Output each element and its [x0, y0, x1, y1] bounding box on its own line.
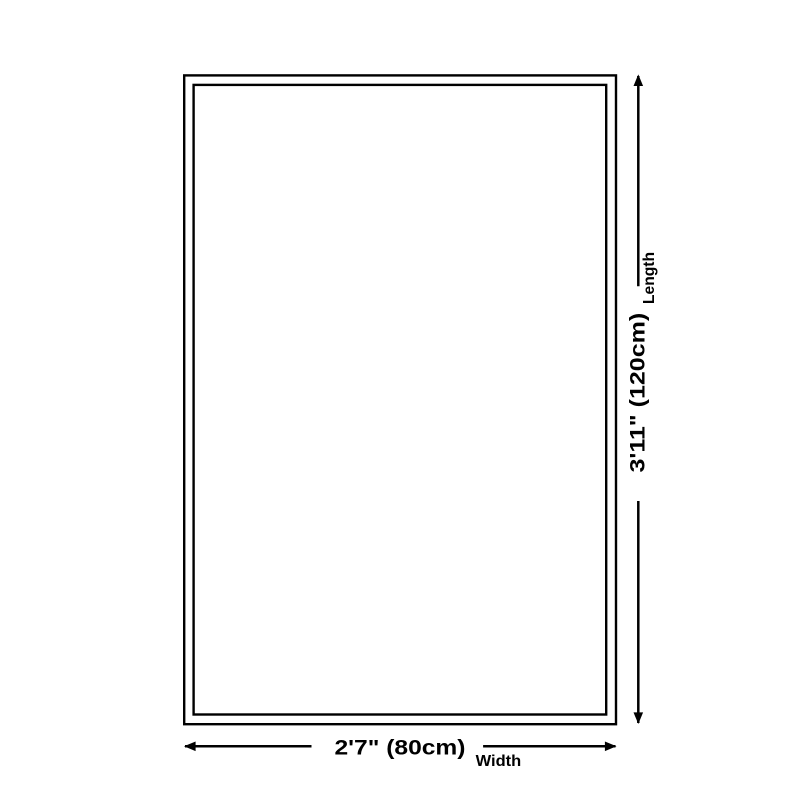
svg-text:3'11" (120cm): 3'11" (120cm) — [625, 313, 649, 473]
svg-text:Length: Length — [641, 252, 658, 304]
svg-text:2'7" (80cm): 2'7" (80cm) — [335, 735, 466, 759]
svg-text:Width: Width — [476, 753, 522, 770]
